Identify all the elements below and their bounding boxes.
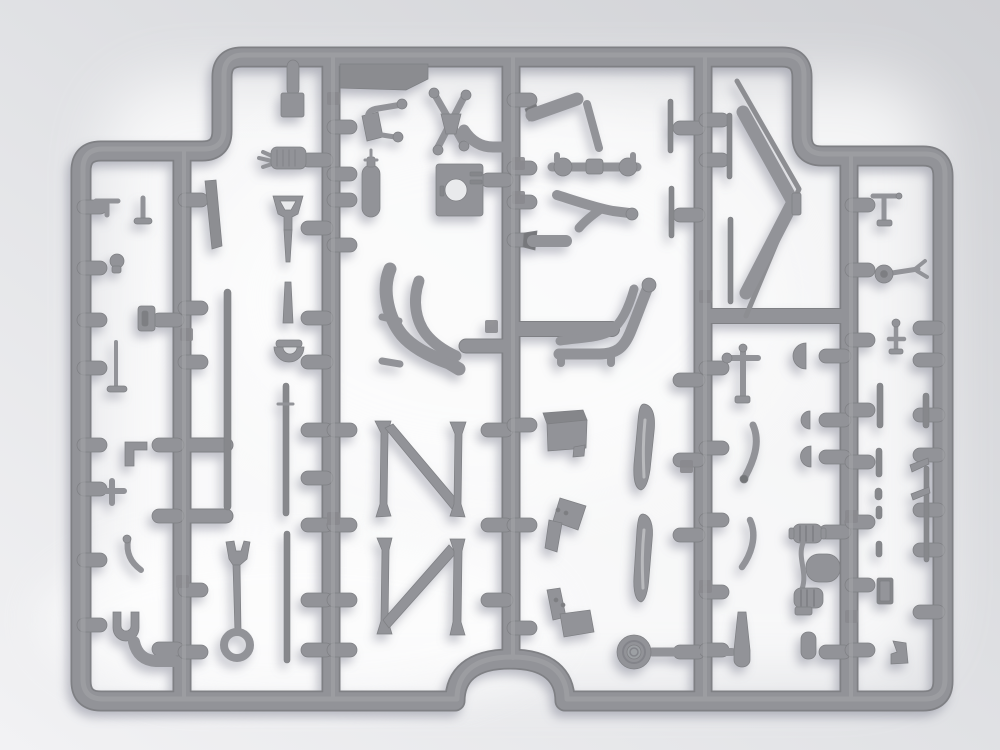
- part-hole-plate-hole: [445, 179, 467, 201]
- gate-77: [913, 605, 945, 619]
- part-axle-cap-right: [821, 528, 826, 539]
- gate-49: [673, 528, 705, 542]
- ejector-pad-3: [485, 320, 498, 333]
- part-axle-foot: [795, 607, 812, 615]
- part-strip-1: [877, 383, 883, 428]
- gate-20: [301, 355, 333, 369]
- part-small-box-face: [880, 581, 890, 601]
- gate-22: [301, 471, 333, 485]
- part-strip-4: [875, 488, 882, 500]
- gate-46: [673, 208, 705, 222]
- part-fender-groove-2: [642, 530, 644, 588]
- part-valve-base: [889, 349, 903, 354]
- part-fender-groove-1: [643, 420, 645, 477]
- part-axle-link: [801, 543, 804, 589]
- part-tool-box-foot: [573, 445, 585, 457]
- part-hole-plate-slot-1: [470, 172, 482, 176]
- gate-8: [152, 313, 184, 327]
- part-seat-cap: [642, 278, 656, 292]
- photo-canvas: [0, 0, 1000, 750]
- gate-72: [913, 353, 945, 367]
- part-clamp-slot: [142, 311, 148, 326]
- part-strip-2: [923, 393, 929, 428]
- part-shovel-blade-shaft: [283, 282, 293, 323]
- ejector-pad-7: [180, 328, 193, 341]
- part-long-rod-3: [284, 531, 290, 663]
- part-long-rod-1: [224, 289, 231, 510]
- part-pedal-knob-3: [433, 145, 443, 155]
- part-gas-bottle: [362, 165, 380, 217]
- part-thin-rod-b: [669, 186, 674, 238]
- part-valve-cap: [892, 319, 900, 327]
- part-strip-7: [876, 541, 882, 557]
- gate-19: [301, 311, 333, 325]
- gate-18: [301, 221, 333, 235]
- pill-gate: [806, 554, 840, 582]
- part-shovel-d-bar: [276, 340, 302, 347]
- gate-59: [819, 413, 851, 427]
- ejector-pad-5: [680, 460, 693, 473]
- part-strip-5: [924, 466, 929, 562]
- part-stake-foot: [107, 386, 127, 392]
- part-tap-base: [877, 220, 892, 226]
- part-shift-lever-tip: [740, 475, 748, 483]
- part-kickstart-knob2: [393, 132, 403, 142]
- gate-47: [673, 373, 705, 387]
- part-kickstart-knob: [397, 99, 407, 109]
- part-tent-peg-foot: [134, 218, 152, 224]
- part-engine-mount-1-rivet-b: [564, 511, 568, 515]
- part-pipe-stub-2: [382, 361, 400, 364]
- part-strip-6: [876, 506, 882, 519]
- part-pedal-arm-tip: [123, 535, 131, 543]
- part-hole-plate-slot-2: [470, 180, 482, 184]
- part-fuel-tap-cap: [739, 344, 747, 352]
- part-pipe-stub-1: [382, 317, 399, 321]
- gate-71: [913, 321, 945, 335]
- gate-78: [287, 60, 299, 96]
- part-apex-tab: [792, 193, 801, 215]
- part-clamp-center: [586, 159, 603, 174]
- part-pedal-knob-1: [429, 88, 439, 98]
- part-small-barrel: [801, 632, 816, 659]
- part-thin-rod-a: [668, 99, 673, 153]
- part-crank-disc-hub: [881, 271, 888, 278]
- part-engine-mount-2-rivet-a: [554, 598, 558, 602]
- part-strip-3: [876, 448, 882, 477]
- gate-58: [819, 349, 851, 363]
- gate-9: [152, 438, 184, 452]
- part-tap-nub: [896, 193, 902, 199]
- part-thin-rod-c: [727, 113, 732, 179]
- part-fuel-tap-base: [735, 396, 750, 403]
- part-hole-plate-slot-3: [440, 186, 444, 196]
- part-axle-unit-bottom: [794, 588, 823, 608]
- part-engine-mount-1-rivet-a: [556, 508, 560, 512]
- part-engine-mount-2-plate: [560, 610, 594, 637]
- part-wheel-hub: [627, 645, 641, 659]
- sprue-photo: [0, 0, 1000, 750]
- part-knob-stem: [112, 266, 121, 273]
- part-axle-unit-top: [793, 524, 822, 543]
- part-pedal-knob-2: [461, 90, 471, 100]
- part-thin-rod-d: [728, 217, 733, 304]
- part-square-block: [281, 93, 304, 117]
- gate-34: [481, 173, 513, 187]
- part-fuel-tap-flange: [722, 353, 732, 363]
- gate-10: [152, 509, 184, 523]
- part-axle-cap-left: [789, 528, 794, 539]
- part-y-pipe-knob: [626, 208, 638, 220]
- gate-37: [481, 593, 513, 607]
- gate-74: [913, 448, 945, 462]
- part-engine-mount-2-rivet-b: [561, 603, 565, 607]
